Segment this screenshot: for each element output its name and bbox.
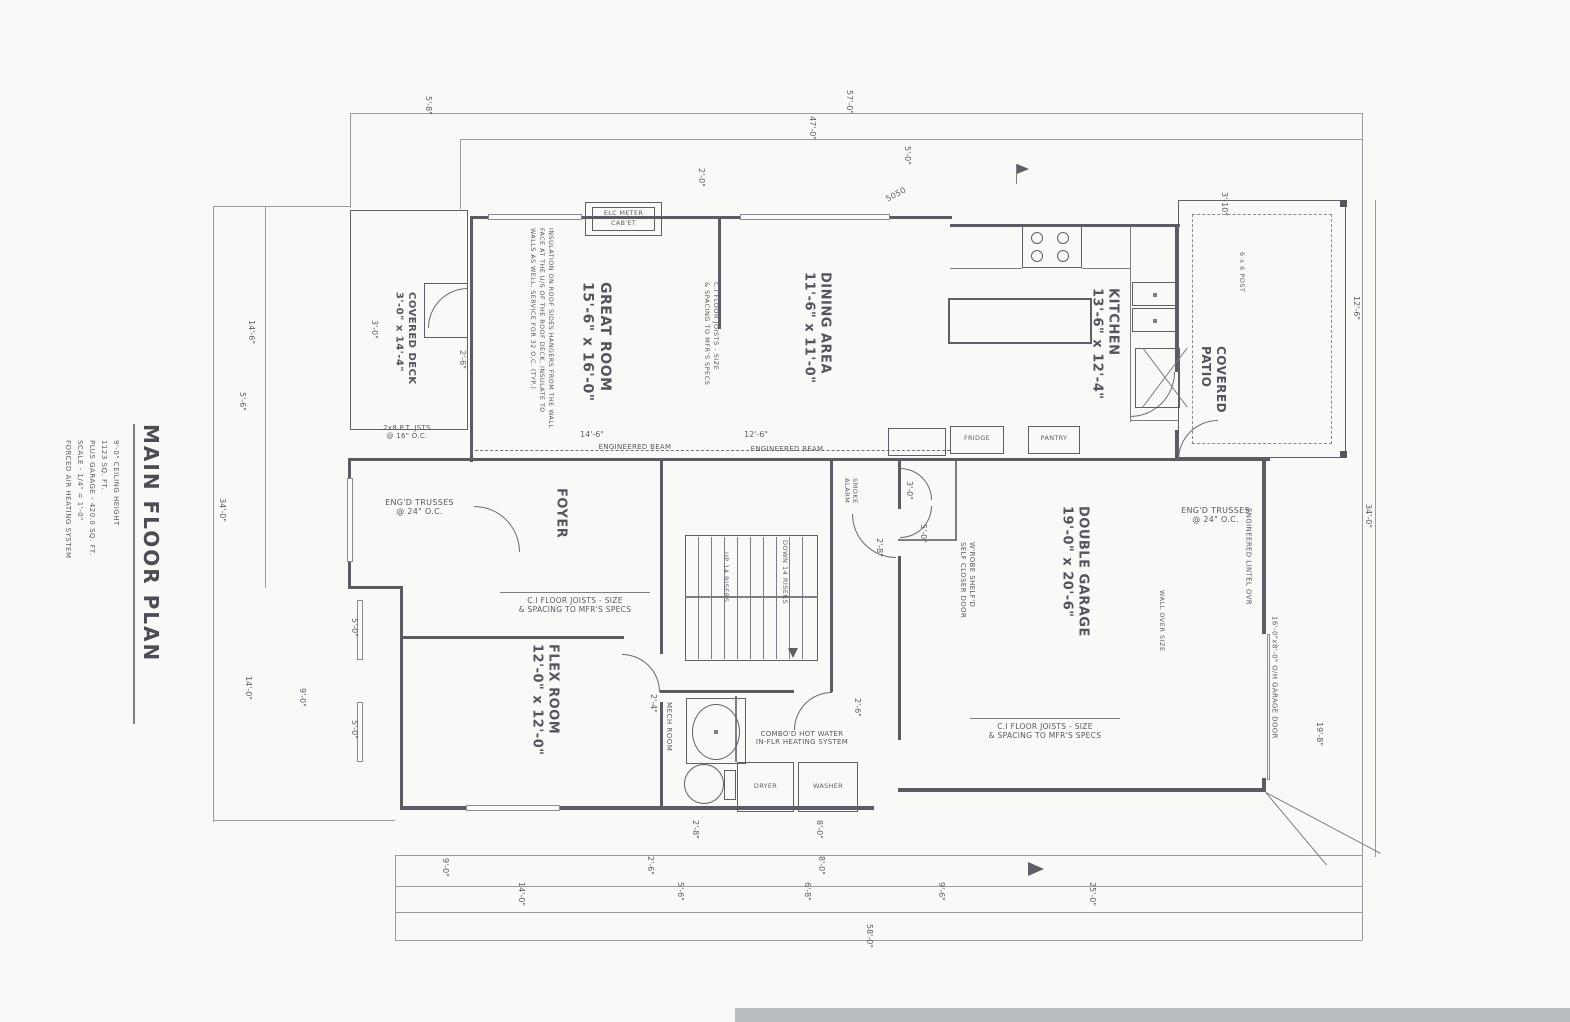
window — [740, 214, 890, 220]
leader-line — [970, 718, 1120, 719]
fridge-label: FRIDGE — [952, 434, 1002, 442]
room-label-flex-room: FLEX ROOM 12'-0" x 12'-0" — [528, 644, 561, 769]
section-arrow — [1028, 862, 1044, 876]
title-notes: 9'-0" CEILING HEIGHT 1123 SQ. FT. PLUS G… — [62, 440, 122, 670]
note-wall-over: WALL OVER SIZE — [1158, 590, 1166, 680]
wall-segment — [348, 458, 1270, 461]
washer-label: WASHER — [802, 782, 854, 790]
dimension-label: 9'-0" — [298, 688, 307, 707]
dishwasher — [1135, 348, 1180, 408]
dimension-label: 19'-8" — [1315, 722, 1324, 746]
dimension-label: 58'-0" — [865, 924, 874, 948]
frame-line — [350, 113, 1362, 114]
note-window-5050: 5050 — [876, 181, 916, 208]
sink-bowl — [1132, 308, 1176, 332]
dimension-label: 6'-8" — [803, 882, 812, 901]
partition-line — [955, 461, 957, 541]
stairs-down-label: DOWN 14 RISERS — [781, 540, 789, 640]
frame-line — [1362, 113, 1363, 857]
kitchen-island — [948, 298, 1092, 344]
room-label-foyer: FOYER — [552, 488, 568, 573]
dimension-label: 8'-0" — [815, 820, 824, 839]
stair-tread — [737, 537, 738, 659]
note-floor-joists-right: C.I FLOOR JOISTS - SIZE & SPACING TO MFR… — [970, 722, 1120, 740]
wall-segment — [348, 586, 403, 589]
door-arc — [622, 654, 660, 692]
toilet-bowl — [684, 764, 724, 804]
frame-line — [350, 113, 351, 208]
stairs-outline — [685, 535, 818, 661]
wall-segment — [400, 636, 624, 639]
dimension-label: 5'-8" — [424, 96, 433, 115]
stove — [1022, 226, 1082, 268]
room-label-mech-room: MECH ROOM — [664, 702, 673, 782]
door-arc — [474, 506, 520, 552]
dimension-label: 9'-6" — [937, 882, 946, 901]
note-post: 6 x 6 POST — [1238, 252, 1246, 322]
dimension-label: 12'-6" — [1352, 296, 1361, 320]
dimension-label: 2'-6" — [458, 350, 467, 369]
room-label-great-room: GREAT ROOM 15'-6" x 16'-0" — [578, 282, 613, 447]
dimension-label: 2'-4" — [649, 694, 658, 713]
frame-line — [395, 940, 1362, 941]
dimension-label: 12'-6" — [744, 430, 768, 439]
frame-line — [213, 820, 395, 821]
dimension-label: 5'-0" — [350, 618, 359, 637]
frame-line — [213, 206, 214, 822]
dimension-label: 3'-0" — [905, 481, 914, 500]
stair-tread — [763, 537, 764, 659]
room-label-covered-patio: COVERED PATIO — [1198, 346, 1228, 446]
counter-edge — [1130, 226, 1131, 422]
stair-tread — [711, 537, 712, 659]
dimension-label: 2'-8" — [691, 820, 700, 839]
stair-tread — [802, 537, 803, 659]
stair-tread — [789, 537, 790, 659]
note-engineered-beam: ENGINEERED BEAM — [580, 443, 690, 451]
dimension-label: 2'-8" — [875, 538, 884, 557]
dimension-label: 14'-6" — [247, 320, 256, 344]
stairs-up-label: UP 14 RISERS — [722, 552, 730, 647]
stair-tread — [698, 537, 699, 659]
dimension-label: 57'-0" — [845, 90, 854, 114]
leader-line — [500, 592, 650, 593]
burner — [1031, 250, 1043, 262]
wall-segment — [660, 702, 663, 810]
bench-cabinet — [888, 428, 946, 456]
driveway-line — [1266, 792, 1381, 854]
burner — [1057, 232, 1069, 244]
frame-line — [395, 912, 1362, 913]
frame-line — [1375, 200, 1376, 857]
pantry-label: PANTRY — [1030, 434, 1078, 442]
elec-meter-label: ELC METER CAB'ET — [590, 208, 657, 228]
dimension-label: 5'-6" — [238, 392, 247, 411]
wall-segment — [1262, 461, 1266, 634]
dimension-label: 9'-0" — [441, 858, 450, 877]
dryer-label: DRYER — [742, 782, 789, 790]
wall-segment — [400, 586, 403, 810]
wall-segment — [898, 556, 901, 740]
dimension-label: 2'-0" — [697, 168, 706, 187]
dimension-label: 34'-0" — [218, 498, 227, 522]
engineered-beam-line — [470, 450, 950, 451]
note-floor-joists-wall: C.I FLOOR JOISTS - SIZE & SPACING TO MFR… — [702, 282, 720, 432]
title-underline — [133, 424, 135, 724]
burner — [1057, 250, 1069, 262]
dimension-label: 5'-0" — [919, 524, 928, 543]
room-label-covered-deck: COVERED DECK 3'-0" x 14'-4" — [392, 292, 417, 437]
floor-plan-sheet: MAIN FLOOR PLAN 9'-0" CEILING HEIGHT 112… — [0, 0, 1570, 1022]
frame-line — [460, 139, 1362, 140]
burner — [1031, 232, 1043, 244]
dimension-label: 47'-0" — [808, 116, 817, 140]
wall-segment — [660, 690, 794, 693]
counter-edge — [1082, 268, 1130, 269]
note-garage-door: 16'-0"x8'-0" O/H GARAGE DOOR — [1270, 616, 1278, 791]
dimension-label: 14'-6" — [580, 430, 604, 439]
room-label-dining-area: DINING AREA 11'-6" x 11'-0" — [800, 272, 833, 407]
counter-edge — [950, 268, 1022, 269]
frame-line — [265, 206, 266, 588]
frame-line — [1362, 855, 1363, 940]
dimension-label: 3'-0" — [370, 320, 379, 339]
dimension-label: 25'-0" — [1088, 882, 1097, 906]
wall-segment — [898, 788, 1266, 792]
frame-line — [395, 855, 1362, 856]
frame-line — [395, 886, 1362, 887]
window — [347, 478, 353, 562]
wall-segment — [470, 216, 473, 462]
window — [488, 214, 582, 220]
patio-post — [1340, 200, 1347, 207]
stair-tread — [776, 537, 777, 659]
door-arc — [794, 692, 832, 730]
dimension-label: 5'-6" — [676, 882, 685, 901]
frame-line — [395, 855, 396, 940]
note-insulation: INSULATION ON ROOF SIDES HANGERS FROM TH… — [528, 228, 555, 443]
dimension-label: 14'-0" — [517, 882, 526, 906]
note-trusses-left: ENG'D TRUSSES @ 24" O.C. — [372, 498, 467, 516]
dimension-label: 3'-10" — [1220, 192, 1229, 216]
note-water-heater: COMBO'D HOT WATER IN-FLR HEATING SYSTEM — [742, 730, 862, 746]
dimension-label: 2'-6" — [646, 856, 655, 875]
page-title: MAIN FLOOR PLAN — [138, 424, 163, 734]
wall-segment — [830, 461, 833, 692]
frame-line — [460, 139, 461, 209]
note-engineered-beam: ENGINEERED BEAM — [732, 445, 842, 453]
stair-stringer — [685, 596, 818, 598]
stair-down-arrow — [788, 648, 798, 658]
toilet-tank — [724, 770, 736, 800]
room-label-kitchen: KITCHEN 13'-6" x 12'-4" — [1088, 288, 1121, 423]
dimension-label: 8'-0" — [817, 856, 826, 875]
dimension-label: 34'-0" — [1364, 504, 1373, 528]
note-deck-joists: 2x8 P.T. JSTS @ 16" O.C. — [362, 424, 452, 440]
dimension-label: 5'-0" — [350, 720, 359, 739]
flag-marker — [1017, 164, 1029, 174]
counter-edge — [1130, 420, 1178, 421]
wall-segment — [660, 461, 663, 654]
dimension-label: 14'-0" — [244, 676, 253, 700]
patio-post — [1340, 451, 1347, 458]
dimension-label: 2'-6" — [853, 698, 862, 717]
room-label-double-garage: DOUBLE GARAGE 19'-0" x 20'-6" — [1058, 506, 1091, 666]
note-wardrobe: W'ROBE SHELF'D SELF CLOSER DOOR — [958, 542, 976, 652]
window — [466, 805, 560, 811]
dimension-label: 5'-0" — [903, 146, 912, 165]
note-floor-joists-left: C.I FLOOR JOISTS - SIZE & SPACING TO MFR… — [500, 596, 650, 614]
note-smoke-alarm: SMOKE ALARM — [843, 478, 859, 538]
sink-bowl — [1132, 282, 1176, 306]
note-lintel: ENGINEERED LINTEL OVR — [1244, 508, 1252, 658]
drain-dot — [714, 730, 718, 734]
frame-line — [213, 206, 350, 207]
stair-tread — [750, 537, 751, 659]
scan-artifact-band — [735, 1008, 1570, 1022]
